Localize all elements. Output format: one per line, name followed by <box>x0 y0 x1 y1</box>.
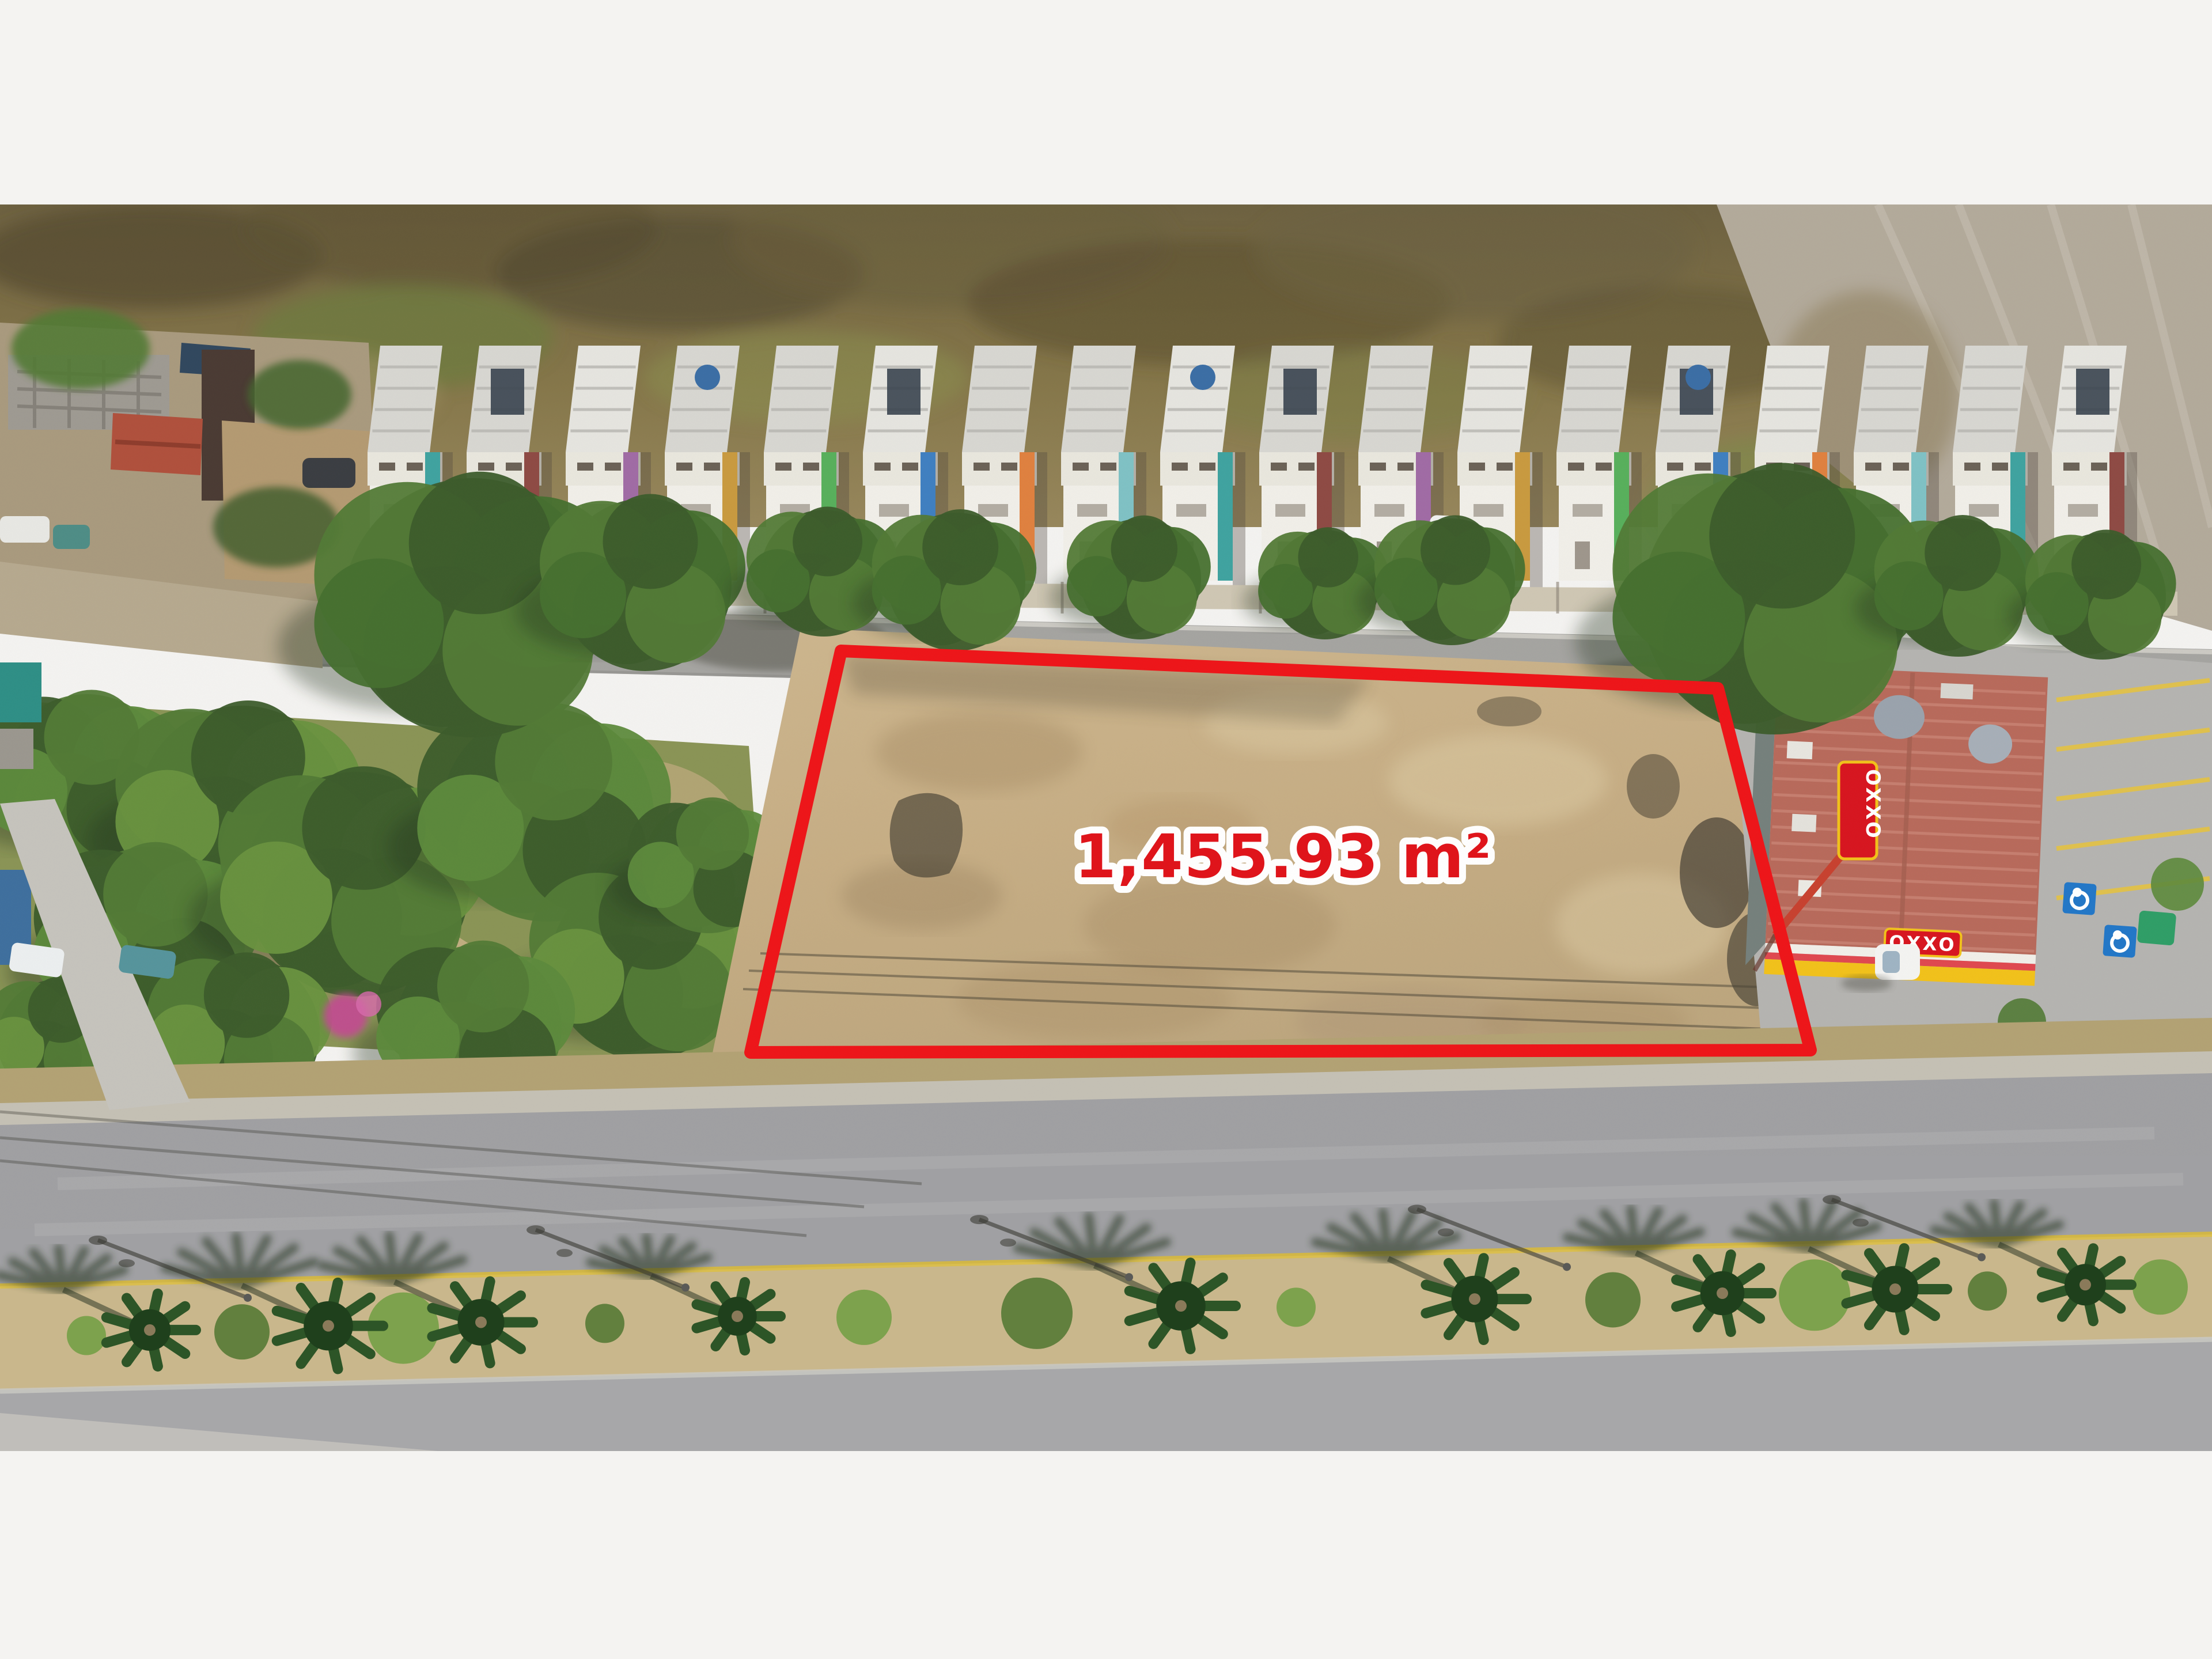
screenshot-canvas: OXXO OXXO <box>0 0 2212 1659</box>
photo-grain-texture <box>0 204 2212 1451</box>
aerial-drone-photo: OXXO OXXO <box>0 204 2212 1451</box>
top-white-letterbox <box>0 0 2212 204</box>
bottom-white-letterbox <box>0 1451 2212 1659</box>
